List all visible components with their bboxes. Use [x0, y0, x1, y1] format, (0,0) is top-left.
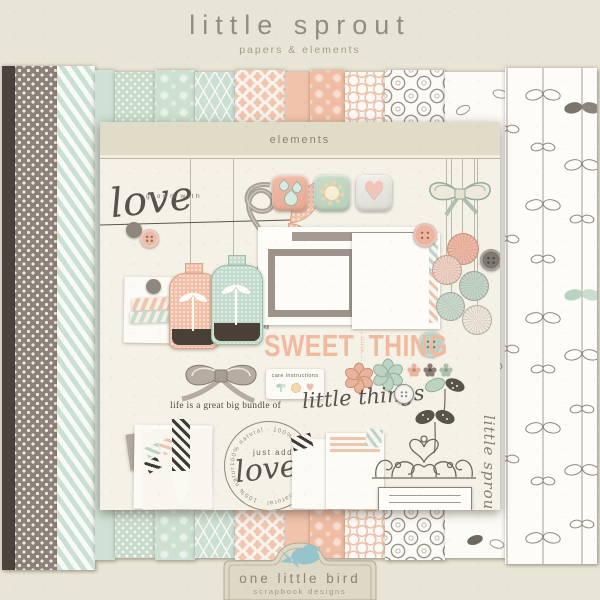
sweet-thing-wordart: SWEET little THING [264, 329, 448, 361]
little-vertical-text: little [359, 329, 364, 361]
sprout-stem [192, 297, 194, 331]
little-sprout-vertical-text: little sprout [478, 415, 498, 507]
carnation-mint-2 [436, 292, 465, 321]
paper-taupe-cross [15, 66, 57, 570]
brand-name: one little bird [222, 571, 378, 586]
button-small-peach [140, 229, 159, 248]
bottle-soil [214, 323, 260, 341]
kit-preview: little sprout papers & elements [0, 0, 600, 600]
paper-mint-stripe [57, 66, 95, 570]
leaf-vine-pattern [505, 68, 597, 564]
bow-taupe-icon [176, 359, 268, 405]
elements-panel: elements love grown with [100, 122, 500, 510]
bottle-soil [172, 329, 216, 345]
journal-card-striped [352, 233, 440, 329]
care-label-text: care instructions [266, 373, 324, 379]
button-gray [480, 249, 500, 271]
brand-subtitle: scrapbook designs [222, 587, 378, 596]
sun-icon [320, 181, 344, 205]
vine-leaf-mint [563, 288, 597, 303]
sweet-text: SWEET [264, 330, 354, 361]
brand-badge: one little bird scrapbook designs [222, 541, 378, 600]
bottle-mint [211, 255, 261, 343]
grown-with-text: grown with [146, 193, 202, 200]
headboard-icon [368, 431, 480, 489]
paper-leaf-vine [505, 68, 597, 564]
love2-script: love [233, 449, 299, 490]
badge-droplets [272, 175, 308, 211]
kit-subtitle: papers & elements [0, 44, 600, 56]
carnation-cream [462, 305, 492, 335]
love-script-text: love [108, 173, 196, 227]
bottle-pink [169, 263, 217, 347]
bundle-text: life is a great big bundle of [170, 401, 281, 411]
sprout-icon [276, 382, 286, 393]
badge-heart: ♥ [356, 175, 392, 211]
heart-icon: ♥ [363, 176, 385, 205]
button-white-outline [394, 384, 414, 404]
sprout-stem [235, 289, 237, 325]
stake-stripes [172, 419, 190, 471]
carnation-mint [459, 271, 489, 301]
elements-body: love grown with ♥ [100, 159, 500, 510]
button-peach [413, 223, 437, 247]
headboard-label [378, 487, 472, 510]
elements-header: elements [100, 122, 500, 159]
vine-leaf-gray [563, 101, 597, 116]
paper-solid-charcoal [2, 66, 15, 570]
thing-text: THING [369, 330, 448, 361]
badge-sun [314, 175, 350, 211]
carnation-blush [432, 255, 462, 285]
sun-icon-small [291, 383, 301, 393]
bow-striped-icon [422, 171, 496, 217]
elements-header-label: elements [270, 134, 331, 146]
hang-string [233, 159, 234, 263]
felt-dot-2 [146, 279, 161, 294]
kit-title: little sprout [0, 10, 600, 41]
frame-gray [268, 249, 356, 317]
